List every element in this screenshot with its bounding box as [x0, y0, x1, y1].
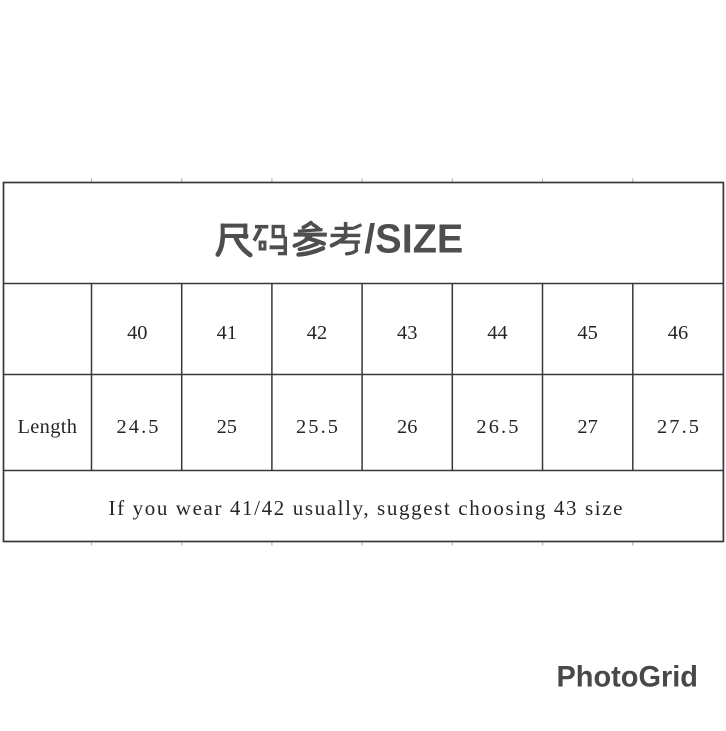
- svg-text:42: 42: [307, 322, 327, 344]
- svg-text:43: 43: [397, 322, 417, 344]
- svg-text:PhotoGrid: PhotoGrid: [557, 661, 699, 694]
- svg-text:25: 25: [217, 416, 237, 438]
- svg-text:27: 27: [577, 416, 597, 438]
- svg-text:24.5: 24.5: [117, 416, 159, 438]
- svg-text:25.5: 25.5: [296, 416, 338, 438]
- svg-text:46: 46: [668, 322, 688, 344]
- svg-text:27.5: 27.5: [657, 416, 699, 438]
- svg-text:/SIZE: /SIZE: [364, 216, 463, 262]
- svg-text:26: 26: [397, 416, 417, 438]
- svg-text:41: 41: [217, 322, 237, 344]
- svg-text:26.5: 26.5: [476, 416, 518, 438]
- svg-text:If you wear 41/42 usually, sug: If you wear 41/42 usually, suggest choos…: [109, 496, 623, 520]
- svg-text:45: 45: [577, 322, 597, 344]
- svg-text:44: 44: [487, 322, 507, 344]
- svg-text:40: 40: [127, 322, 147, 344]
- svg-text:Length: Length: [17, 416, 76, 438]
